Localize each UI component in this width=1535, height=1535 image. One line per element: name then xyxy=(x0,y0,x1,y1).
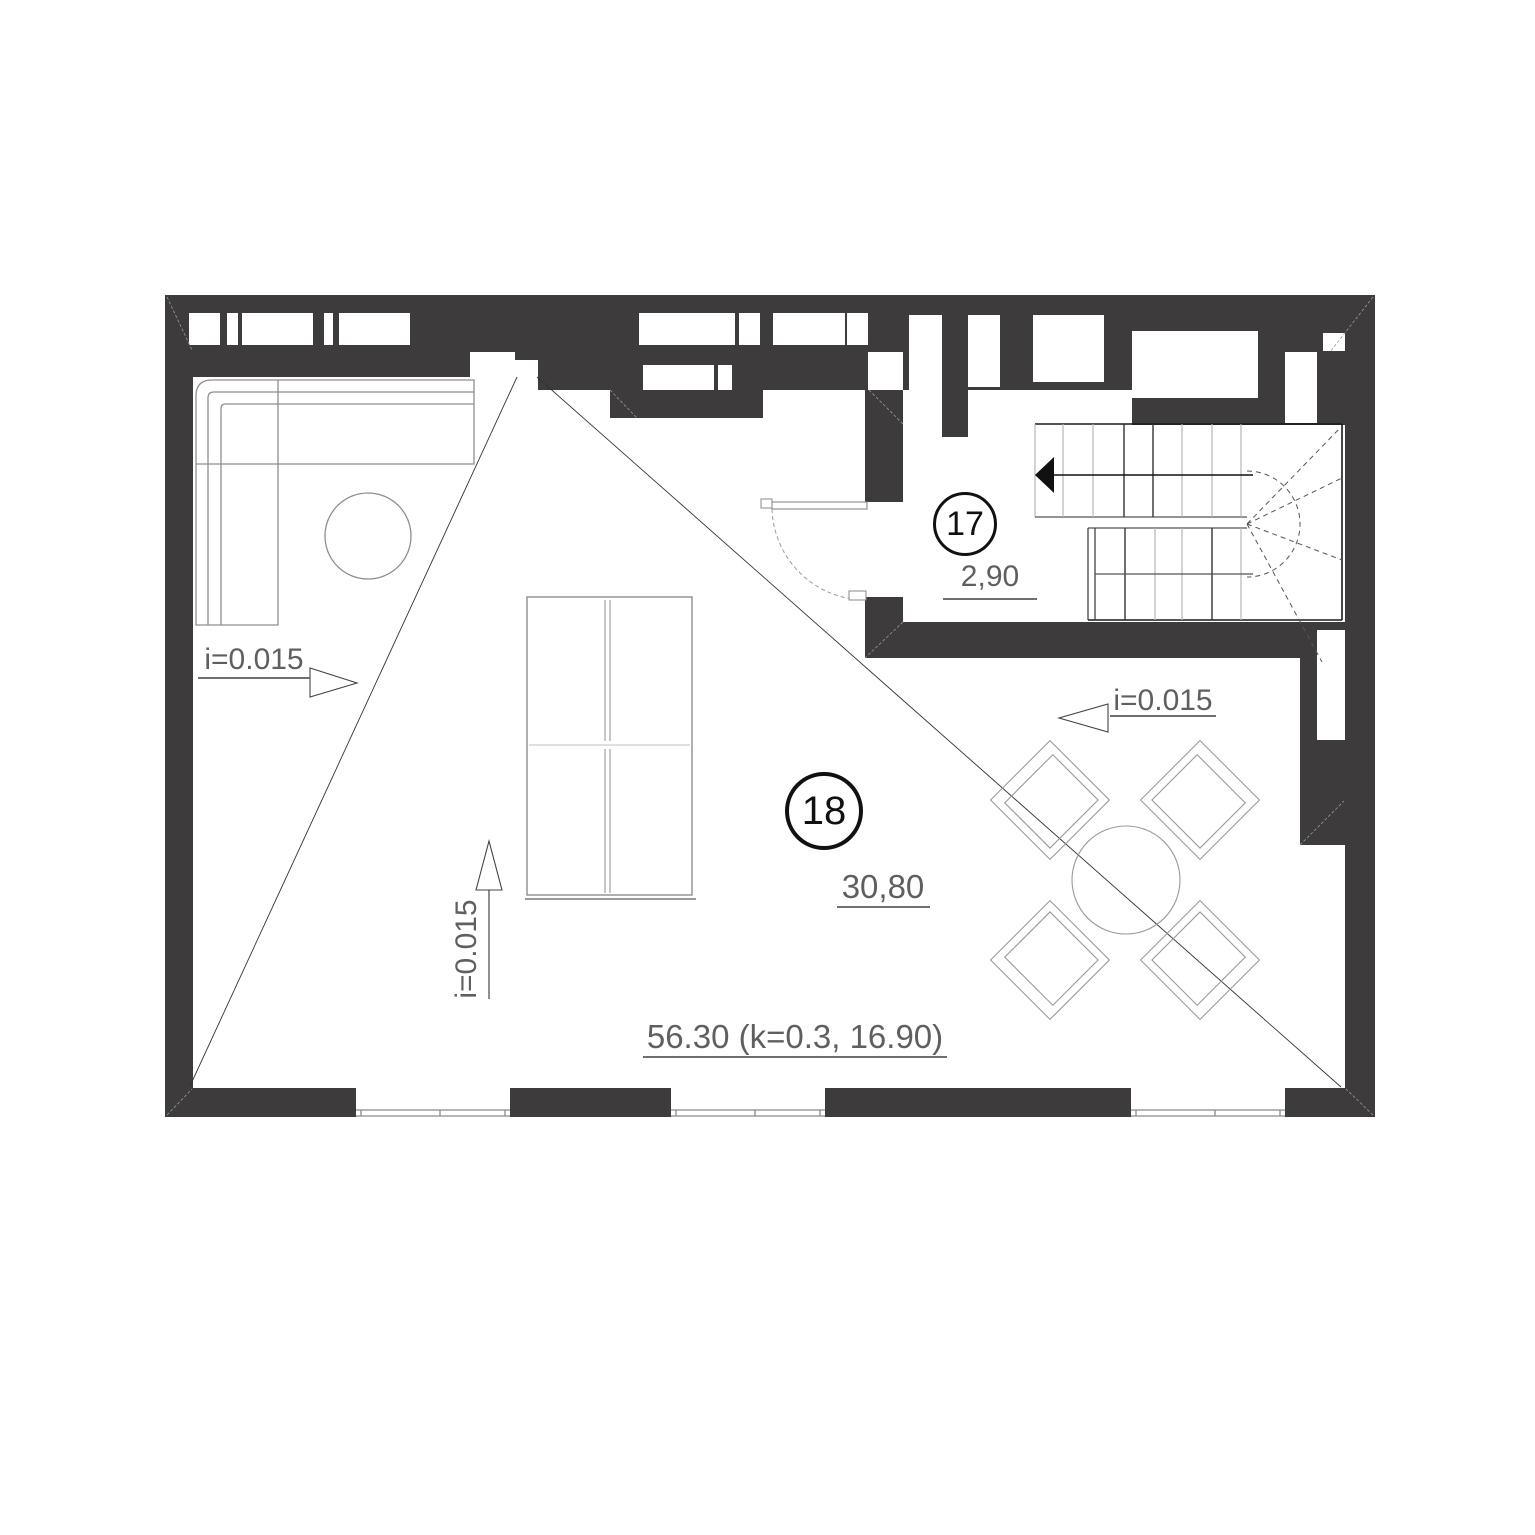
dining-table xyxy=(1072,826,1180,934)
slope-arrow-right-icon xyxy=(310,668,357,697)
bottom-windows-group xyxy=(356,1088,1285,1117)
dining-set xyxy=(991,741,1260,1020)
slope-ridge-lines xyxy=(190,377,1341,1087)
chair xyxy=(1141,901,1260,1020)
room-18-area: 30,80 xyxy=(823,868,943,906)
slope-arrow-up-icon xyxy=(476,841,502,890)
side-table xyxy=(325,493,411,579)
room-18-area-underline xyxy=(837,906,930,908)
stair-treads-lower xyxy=(1095,528,1253,620)
door-swing-arc xyxy=(772,509,866,600)
room-17-number: 17 xyxy=(946,505,984,544)
stair-treads-upper xyxy=(1063,424,1241,517)
floor-plan-page: 17 2,90 18 30,80 56.30 (k=0.3, 16.90) i=… xyxy=(0,0,1535,1535)
floor-plan-drawing xyxy=(0,0,1535,1535)
slope-label-right-underline xyxy=(1110,715,1216,717)
bed xyxy=(525,597,696,899)
slope-arrows-group xyxy=(310,668,1108,999)
room-18-number: 18 xyxy=(802,789,847,834)
slope-label-left: i=0.015 xyxy=(198,643,310,677)
room-17-area: 2,90 xyxy=(930,560,1050,594)
room-17-area-underline xyxy=(943,598,1037,600)
wall-room17-bottom xyxy=(865,622,1345,658)
wall-door-jamb-upper xyxy=(865,390,903,502)
slope-line-right xyxy=(537,377,1341,1087)
chair xyxy=(991,741,1110,860)
chair xyxy=(991,901,1110,1020)
total-area-label: 56.30 (k=0.3, 16.90) xyxy=(635,1018,955,1056)
slope-label-middle: i=0.015 xyxy=(450,889,484,1009)
wall-left xyxy=(165,295,193,1117)
room-17-number-badge: 17 xyxy=(933,492,997,556)
door xyxy=(761,499,867,600)
room-18-number-badge: 18 xyxy=(785,772,863,850)
stair-direction-arrow xyxy=(1035,457,1253,493)
total-area-underline xyxy=(643,1056,947,1058)
slope-label-left-underline xyxy=(198,677,310,679)
corner-sofa xyxy=(196,380,474,625)
chair xyxy=(1141,741,1260,860)
slope-label-right: i=0.015 xyxy=(1108,684,1218,718)
door-leaf xyxy=(772,502,867,509)
slope-arrow-left-icon xyxy=(1059,704,1108,732)
arrow-head-icon xyxy=(1035,457,1054,493)
